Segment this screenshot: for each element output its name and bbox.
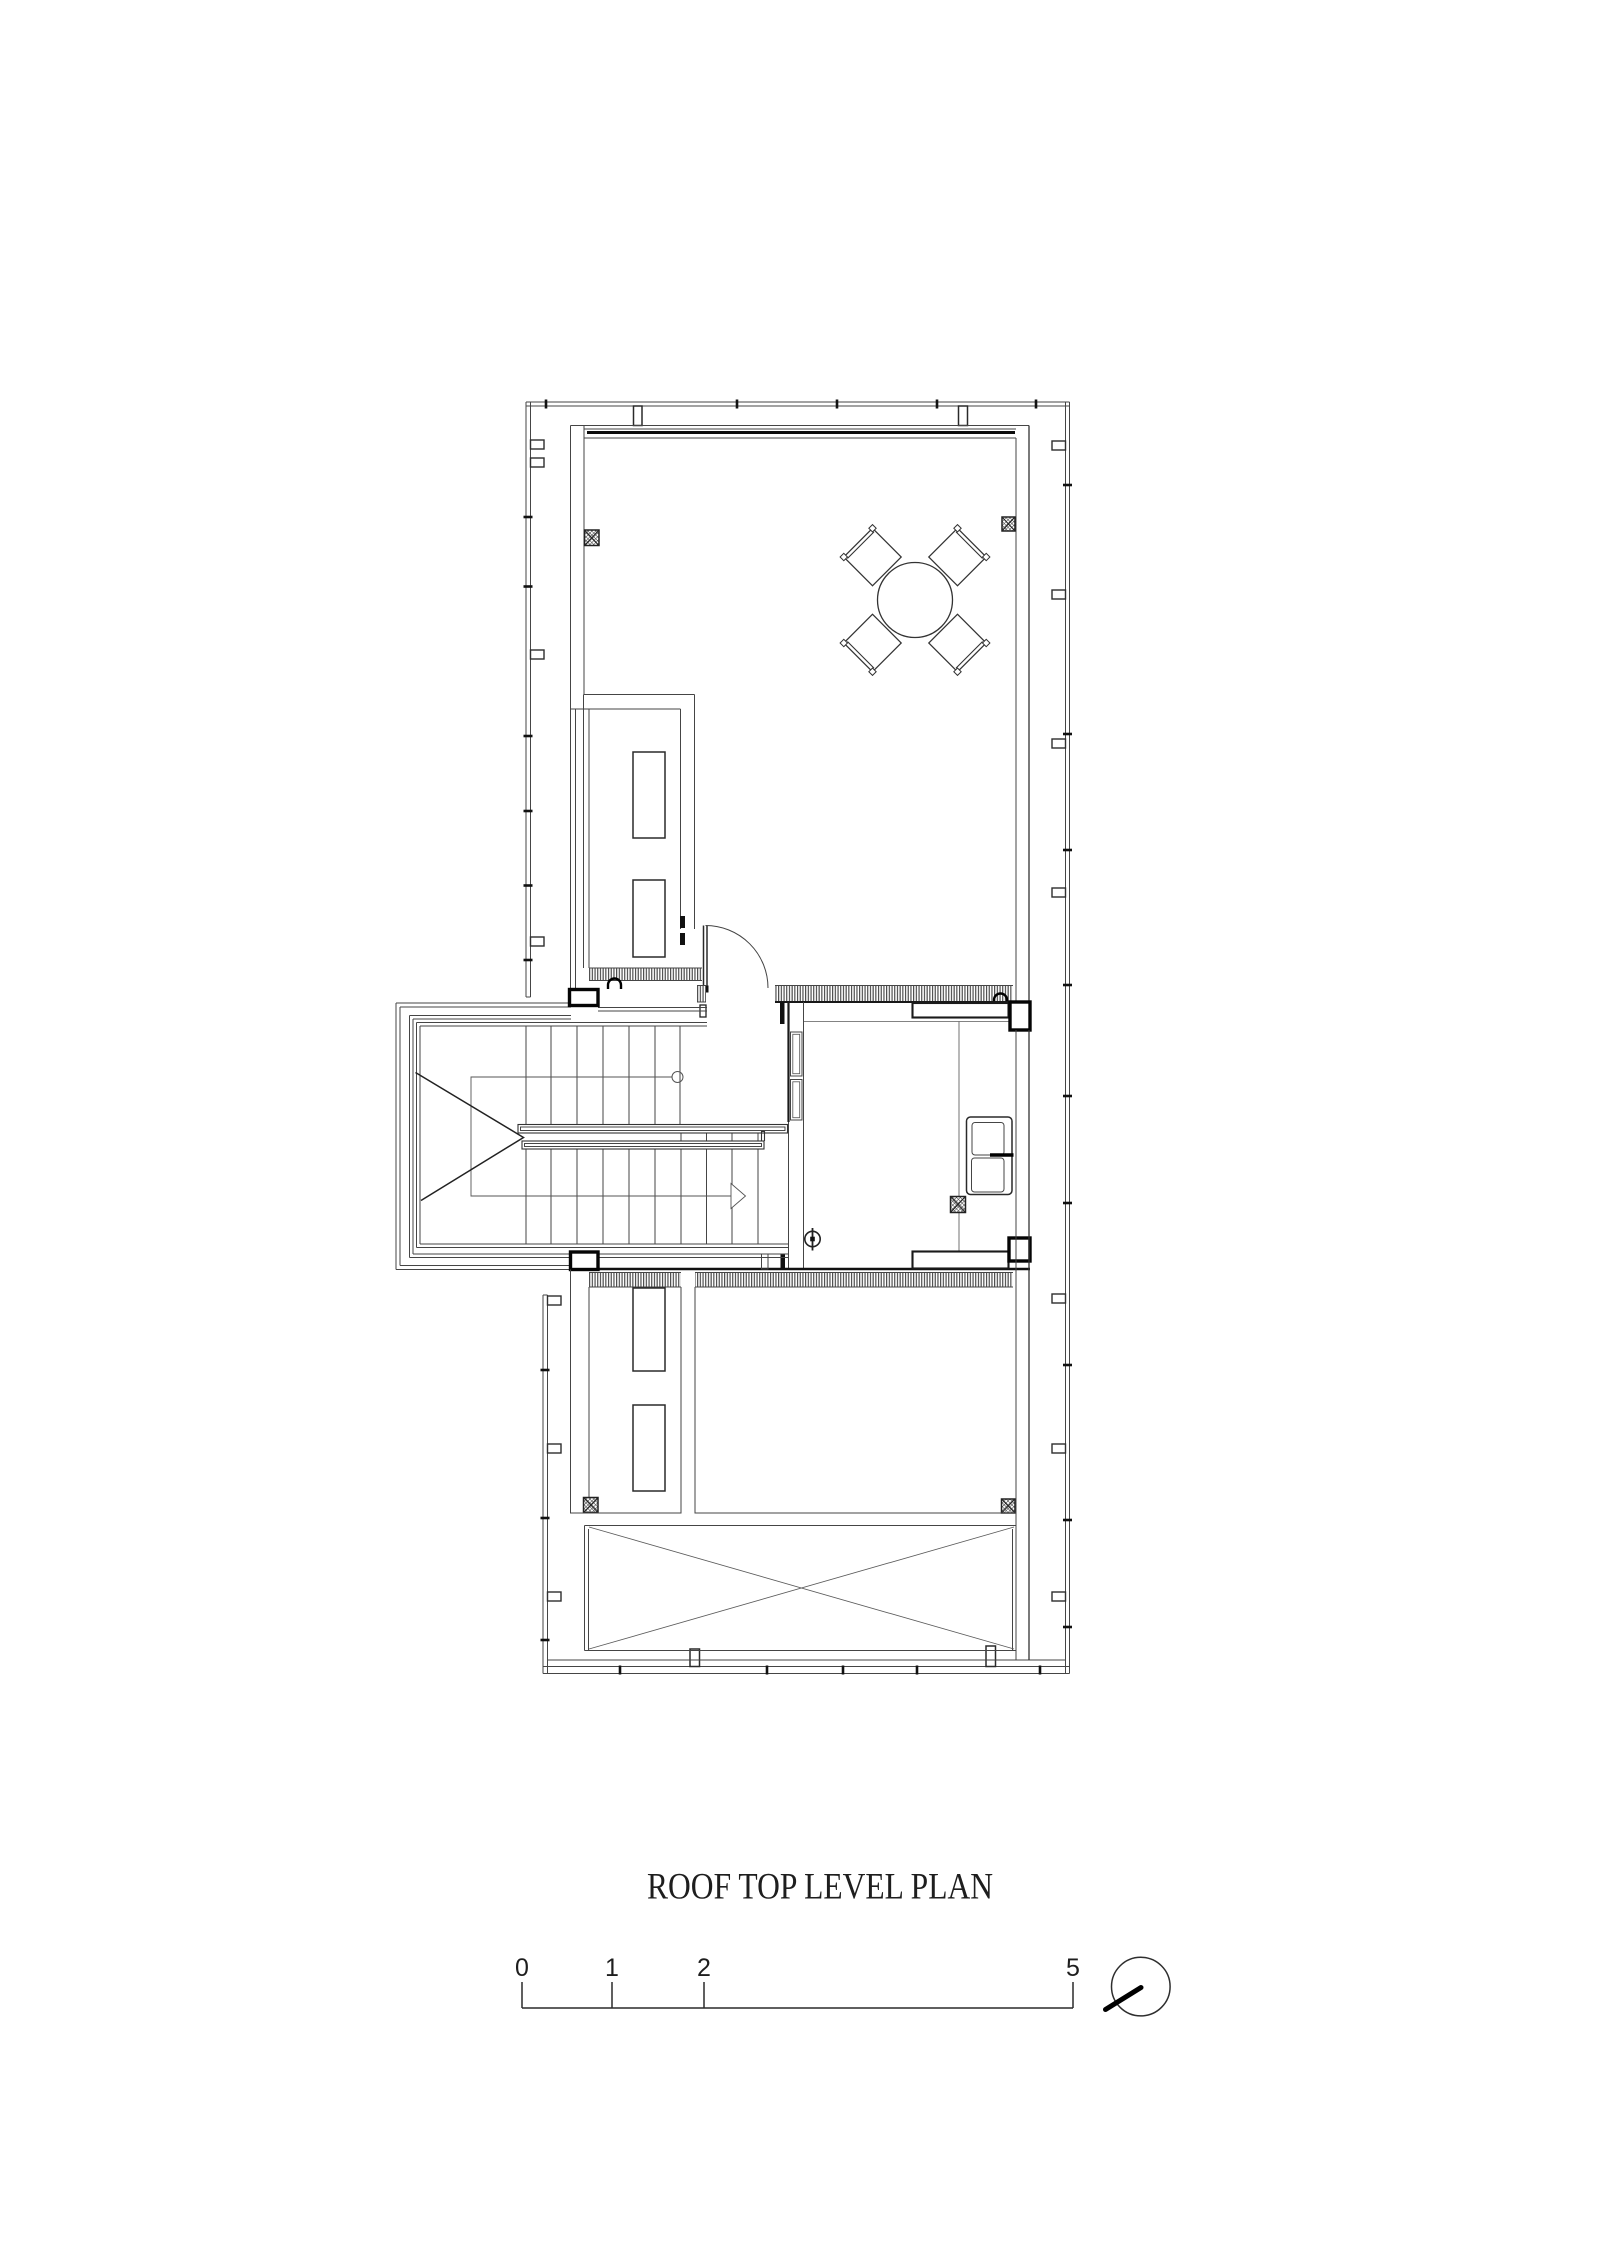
svg-text:1: 1 [605, 1954, 619, 1982]
svg-text:ROOF TOP LEVEL PLAN: ROOF TOP LEVEL PLAN [647, 1867, 993, 1908]
svg-text:2: 2 [697, 1954, 711, 1982]
svg-text:0: 0 [515, 1954, 529, 1982]
svg-text:5: 5 [1066, 1954, 1080, 1982]
